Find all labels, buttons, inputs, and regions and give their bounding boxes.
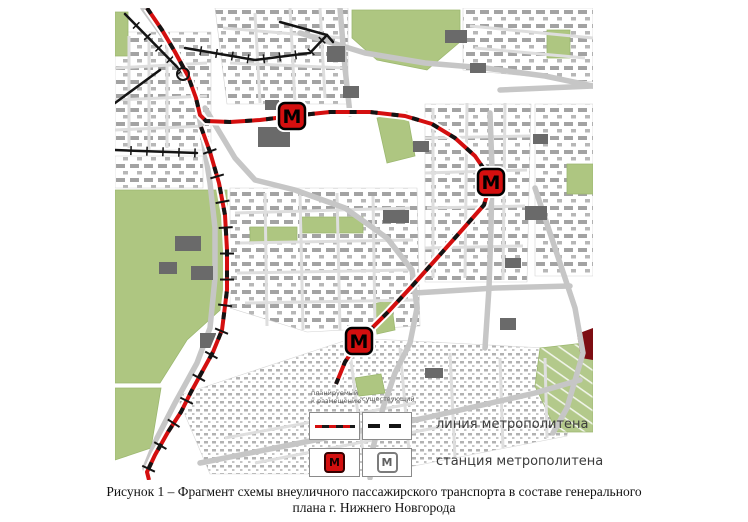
building: [159, 262, 177, 274]
building: [500, 318, 516, 330]
minor-road: [265, 193, 267, 326]
minor-road: [373, 196, 375, 328]
building: [525, 206, 547, 220]
planned-line-icon: [315, 425, 355, 428]
metro-station-marker: М: [276, 100, 308, 132]
svg-text:М: М: [283, 106, 302, 128]
city-map: МММ: [115, 8, 593, 480]
legend-label-line: линия метрополитена: [436, 417, 589, 432]
svg-text:М: М: [350, 331, 369, 353]
legend-header-existing: существующий: [362, 396, 415, 404]
building: [505, 258, 521, 268]
minor-road: [425, 136, 530, 138]
minor-road: [425, 246, 523, 248]
svg-text:М: М: [482, 172, 501, 194]
building: [533, 134, 548, 144]
existing-line-icon: [368, 424, 406, 428]
railway-tick: [219, 227, 233, 228]
park-area: [567, 164, 593, 194]
figure-caption-line1: Рисунок 1 – Фрагмент схемы внеуличного п…: [0, 484, 748, 500]
legend-station-planned-sample: М: [309, 448, 360, 477]
building: [413, 141, 429, 152]
legend-line-existing-sample: [362, 412, 412, 440]
park-area: [115, 12, 128, 56]
legend-header-planned: планируемый к размещению: [311, 390, 362, 405]
legend-line-planned-sample: [309, 412, 360, 440]
planned-station-icon: М: [324, 452, 345, 473]
figure-caption-line2: плана г. Нижнего Новгорода: [0, 500, 748, 516]
building: [445, 30, 467, 43]
legend-station-existing-sample: М: [362, 448, 412, 477]
minor-road: [427, 206, 525, 208]
map-figure: МММ: [115, 8, 593, 480]
existing-station-icon: М: [377, 452, 398, 473]
legend-label-station: станция метрополитена: [436, 454, 603, 469]
building: [470, 63, 486, 73]
park-area: [302, 217, 363, 233]
city-block: [115, 156, 203, 188]
metro-station-marker: М: [475, 166, 507, 198]
building: [327, 46, 345, 62]
building: [191, 266, 213, 280]
metro-station-marker: М: [343, 325, 375, 357]
figure-caption: Рисунок 1 – Фрагмент схемы внеуличного п…: [0, 484, 748, 516]
park-area: [250, 227, 297, 242]
building: [425, 368, 443, 378]
document-page: МММ планируемый к размещению существующи…: [0, 0, 748, 522]
building: [383, 210, 409, 223]
minor-road: [465, 103, 467, 278]
building: [343, 86, 359, 98]
building: [175, 236, 201, 251]
